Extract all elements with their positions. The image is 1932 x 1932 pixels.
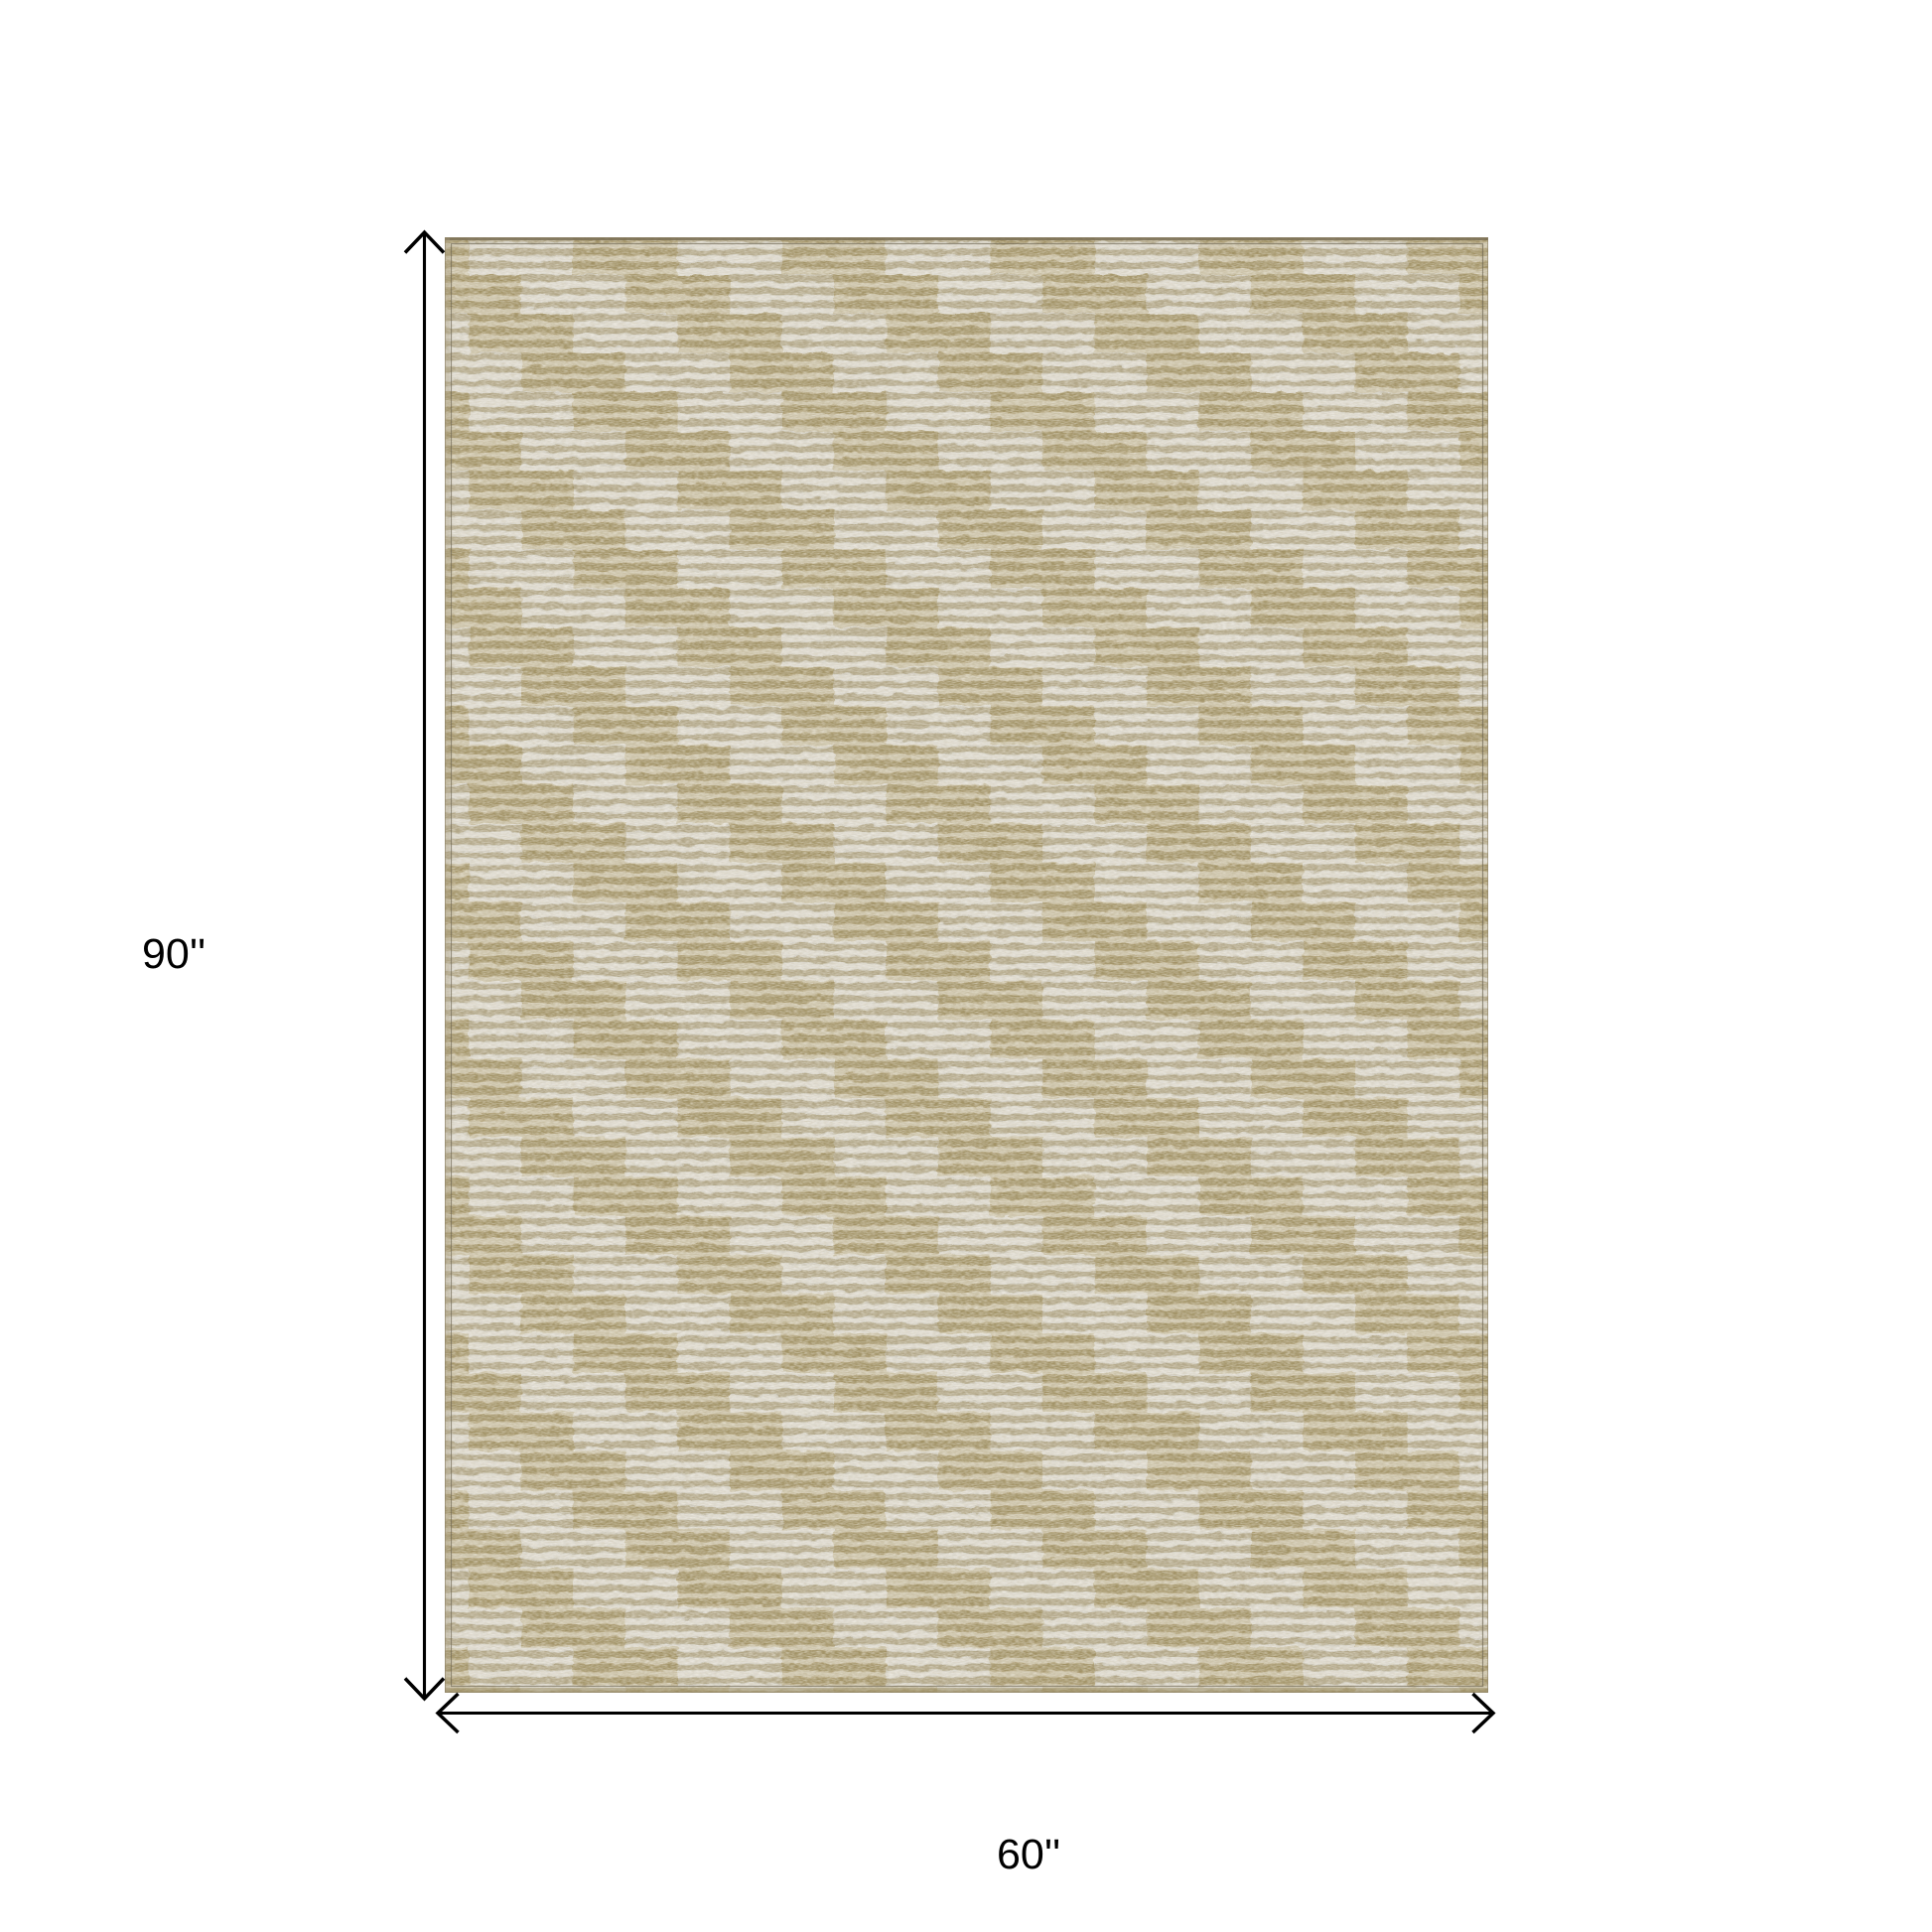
svg-text:90'': 90'' (142, 930, 206, 978)
svg-text:60'': 60'' (997, 1831, 1060, 1878)
